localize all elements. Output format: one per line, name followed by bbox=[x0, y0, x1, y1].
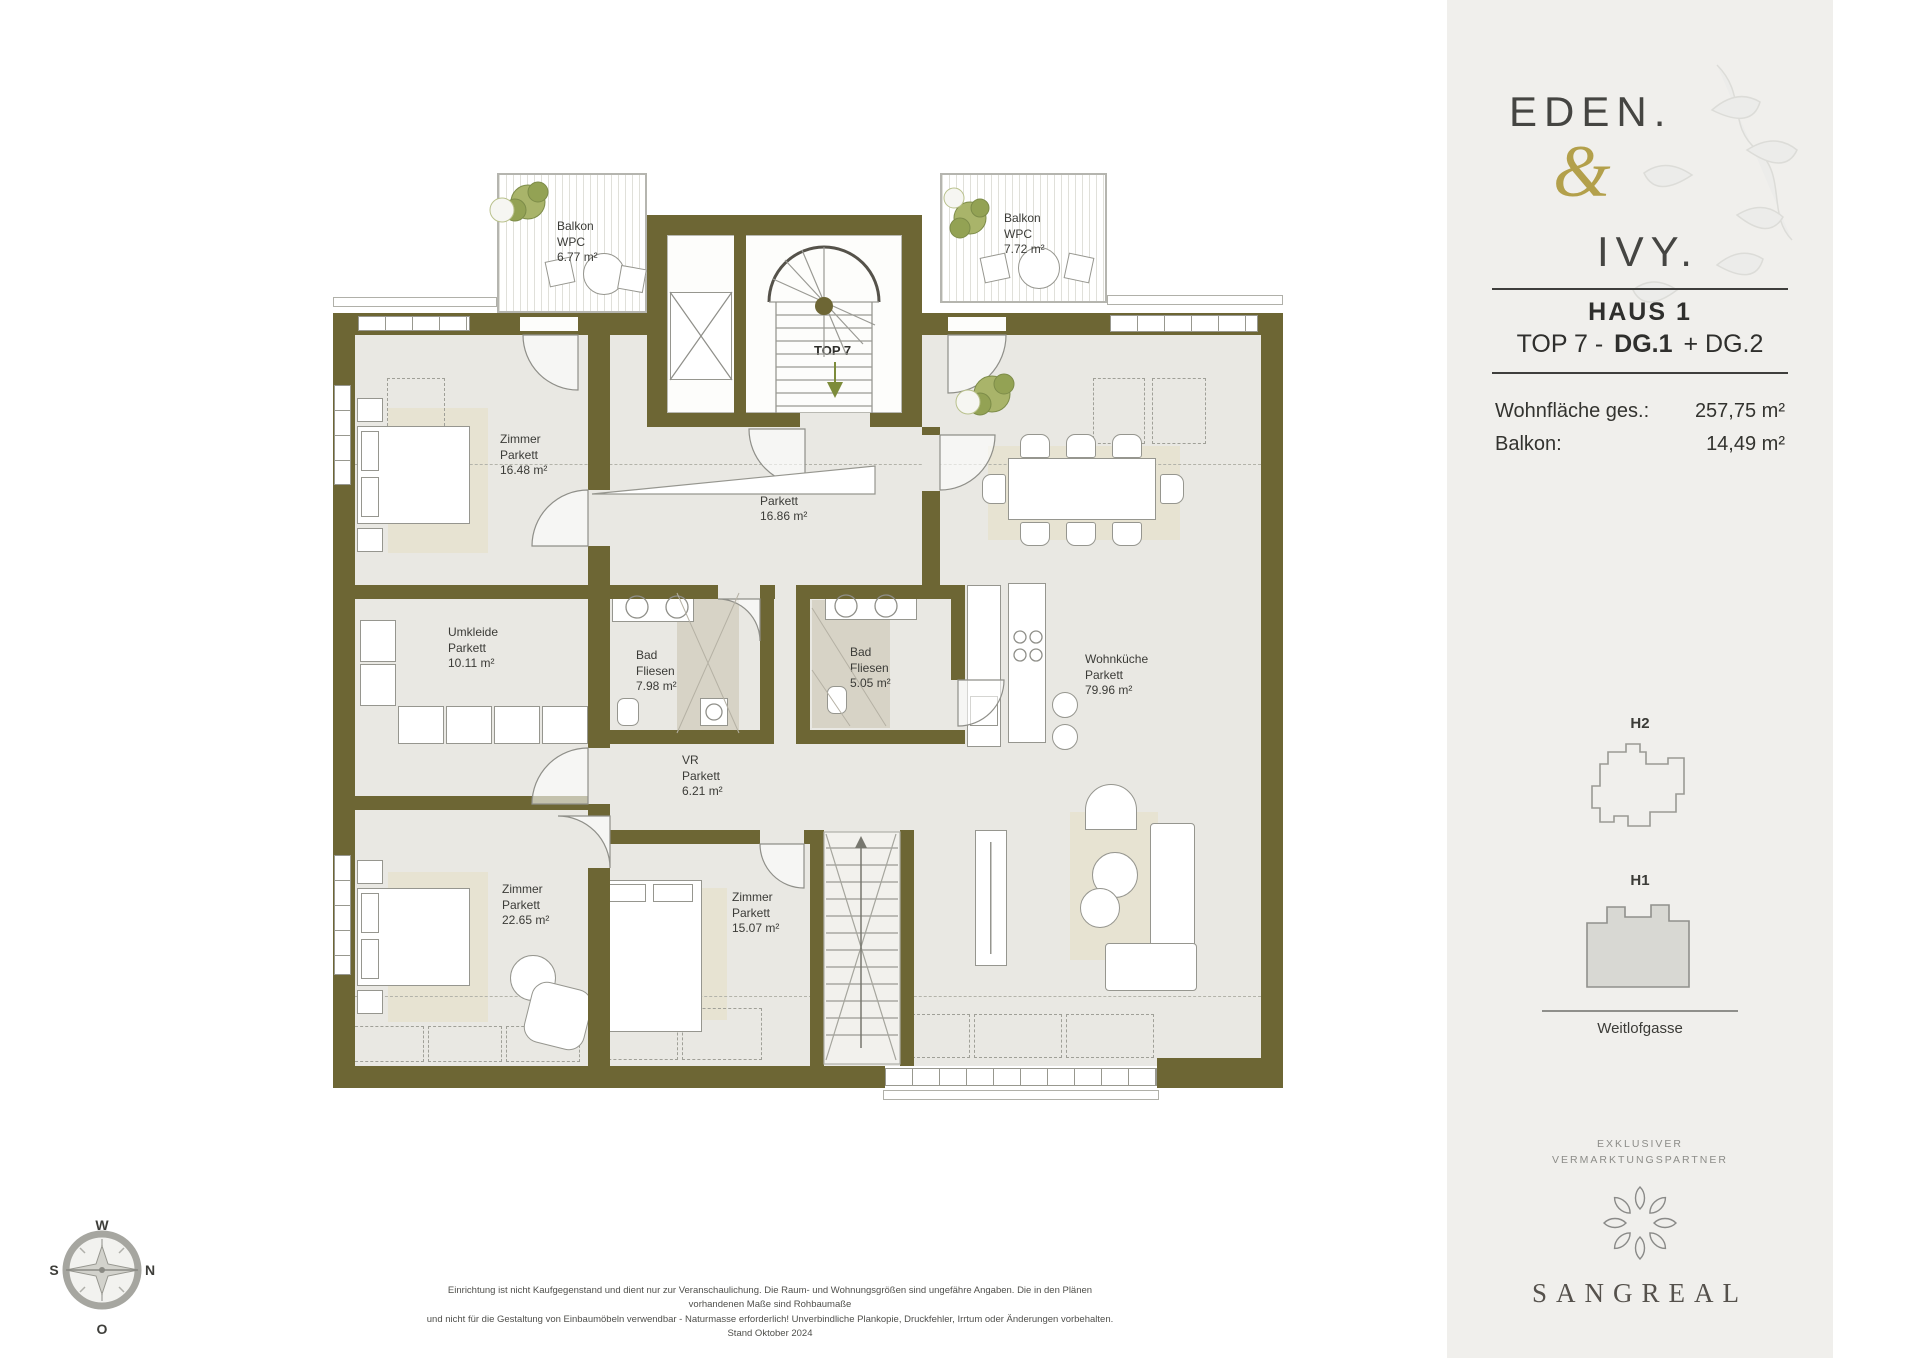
disclaimer: Einrichtung ist nicht Kaufgegenstand und… bbox=[420, 1284, 1120, 1341]
wall bbox=[1157, 1058, 1283, 1088]
h2-label: H2 bbox=[1447, 715, 1833, 732]
disclaimer-line-2: und nicht für die Gestaltung von Einbaum… bbox=[420, 1313, 1120, 1342]
logo-word-ivy: IVY. bbox=[1597, 228, 1699, 276]
wardrobe bbox=[446, 706, 492, 744]
chair bbox=[1066, 434, 1096, 458]
partner-line-1: EXKLUSIVER bbox=[1447, 1138, 1833, 1150]
low-storage bbox=[882, 1014, 970, 1058]
parapet bbox=[1107, 295, 1283, 305]
haus-title: HAUS 1 bbox=[1447, 298, 1833, 327]
pillow bbox=[361, 893, 379, 933]
pillow bbox=[361, 939, 379, 979]
street-line bbox=[1542, 1010, 1738, 1012]
top-prefix: TOP 7 - bbox=[1517, 330, 1604, 358]
pillow bbox=[361, 431, 379, 471]
stool bbox=[1052, 724, 1078, 750]
top-bold: DG.1 bbox=[1614, 330, 1672, 358]
wall bbox=[810, 830, 824, 1066]
wardrobe bbox=[398, 706, 444, 744]
parapet bbox=[333, 297, 497, 307]
pillow bbox=[653, 884, 693, 902]
bed bbox=[357, 888, 470, 986]
wardrobe bbox=[542, 706, 588, 744]
top-title: TOP 7 - DG.1 + DG.2 bbox=[1447, 330, 1833, 359]
wall bbox=[355, 796, 588, 810]
entry-door-opening bbox=[800, 413, 870, 429]
nightstand bbox=[357, 860, 383, 884]
area-label: Wohnfläche ges.: bbox=[1495, 400, 1649, 423]
room-label-balkon-2: Balkon WPC 7.72 m² bbox=[1004, 211, 1045, 258]
floorplan-page: Balkon WPC 6.77 m² Balkon WPC 7.72 m² Zi… bbox=[0, 0, 1920, 1358]
tv-sideboard bbox=[975, 830, 1007, 966]
wall bbox=[1261, 313, 1283, 1088]
nightstand bbox=[357, 398, 383, 422]
compass-n: N bbox=[145, 1262, 155, 1278]
room-label-bad-2: BadFliesen5.05 m² bbox=[850, 645, 891, 692]
chair bbox=[982, 474, 1006, 504]
wall bbox=[796, 585, 810, 744]
elevator-icon bbox=[670, 292, 732, 380]
skylight bbox=[1152, 378, 1206, 444]
unit-label: TOP 7 bbox=[814, 343, 851, 358]
divider bbox=[1492, 372, 1788, 374]
door-opening bbox=[951, 680, 965, 730]
disclaimer-line-1: Einrichtung ist nicht Kaufgegenstand und… bbox=[420, 1284, 1120, 1313]
bed bbox=[357, 426, 470, 524]
floor-plan: Balkon WPC 6.77 m² Balkon WPC 7.72 m² Zi… bbox=[330, 140, 1286, 1102]
wall bbox=[810, 585, 965, 599]
area-value: 14,49 m² bbox=[1706, 433, 1785, 456]
washer bbox=[700, 698, 728, 726]
room-label-vr-1: VRParkett16.86 m² bbox=[760, 478, 807, 525]
balcony-door-opening bbox=[948, 317, 1006, 331]
low-storage bbox=[350, 1026, 424, 1062]
door-opening bbox=[588, 748, 610, 804]
wall bbox=[333, 1066, 885, 1088]
brand-name: SANGREAL bbox=[1447, 1278, 1833, 1309]
coffee-table bbox=[1080, 888, 1120, 928]
chair bbox=[1112, 522, 1142, 546]
logo-ampersand: & bbox=[1553, 130, 1611, 215]
compass-icon: W N S O bbox=[42, 1206, 162, 1338]
wall bbox=[900, 830, 914, 1066]
chair bbox=[1160, 474, 1184, 504]
balcony-1: Balkon WPC 6.77 m² bbox=[497, 173, 647, 313]
toilet bbox=[827, 686, 847, 714]
kitchen-appliance bbox=[970, 696, 998, 726]
low-storage bbox=[974, 1014, 1062, 1058]
logo-word-eden: EDEN. bbox=[1509, 88, 1672, 136]
parapet bbox=[883, 1090, 1159, 1100]
terrace-window bbox=[885, 1068, 1157, 1086]
compass-w: W bbox=[95, 1217, 109, 1233]
height-line bbox=[355, 996, 1261, 997]
low-storage bbox=[428, 1026, 502, 1062]
door-opening bbox=[588, 490, 610, 546]
divider bbox=[1492, 288, 1788, 290]
toilet bbox=[617, 698, 639, 726]
chair bbox=[1020, 522, 1050, 546]
area-value: 257,75 m² bbox=[1695, 400, 1785, 423]
area-row-wohnflaeche: Wohnfläche ges.: 257,75 m² bbox=[1495, 400, 1785, 423]
dining-table bbox=[1008, 458, 1156, 520]
wall bbox=[355, 585, 588, 599]
room-label-zimmer-2: ZimmerParkett22.65 m² bbox=[502, 882, 549, 929]
wall bbox=[610, 730, 774, 744]
wall bbox=[588, 335, 610, 810]
compass-s: S bbox=[49, 1262, 58, 1278]
chair bbox=[1112, 434, 1142, 458]
stool bbox=[1052, 692, 1078, 718]
chair bbox=[1066, 522, 1096, 546]
wardrobe bbox=[494, 706, 540, 744]
window-band bbox=[1110, 315, 1258, 332]
nightstand bbox=[357, 990, 383, 1014]
wardrobe bbox=[360, 620, 396, 662]
balcony-2: Balkon WPC 7.72 m² bbox=[940, 173, 1107, 303]
wall bbox=[734, 235, 746, 413]
room-label-zimmer-1: ZimmerParkett16.48 m² bbox=[500, 432, 547, 479]
chair bbox=[1020, 434, 1050, 458]
door-opening bbox=[718, 585, 760, 599]
armchair bbox=[1085, 784, 1137, 830]
balcony-chair bbox=[1064, 253, 1095, 284]
pillow bbox=[361, 477, 379, 517]
top-suffix: + DG.2 bbox=[1683, 330, 1763, 358]
nightstand bbox=[357, 528, 383, 552]
room-label-wohnkueche: WohnkücheParkett79.96 m² bbox=[1085, 652, 1148, 699]
street-name: Weitlofgasse bbox=[1447, 1020, 1833, 1037]
room-label-vr-2: VRParkett6.21 m² bbox=[682, 753, 723, 800]
sidebar: EDEN. & IVY. HAUS 1 TOP 7 - DG.1 + DG.2 … bbox=[1447, 0, 1833, 1358]
wardrobe bbox=[360, 664, 396, 706]
area-label: Balkon: bbox=[1495, 433, 1562, 456]
pillow bbox=[606, 884, 646, 902]
wall bbox=[760, 585, 774, 744]
window bbox=[358, 316, 470, 331]
partner-line-2: VERMARKTUNGSPARTNER bbox=[1447, 1154, 1833, 1166]
room-label-balkon-1: Balkon WPC 6.77 m² bbox=[557, 219, 598, 266]
h1-footprint-icon bbox=[1575, 895, 1703, 995]
compass-o: O bbox=[97, 1321, 108, 1337]
kitchen-island bbox=[1008, 583, 1046, 743]
door-opening bbox=[588, 816, 610, 868]
balcony-chair bbox=[617, 265, 647, 293]
h2-footprint-icon bbox=[1580, 738, 1692, 846]
window bbox=[334, 385, 351, 485]
room-label-zimmer-3: ZimmerParkett15.07 m² bbox=[732, 890, 779, 937]
bed bbox=[600, 880, 702, 1032]
room-label-umkleide: UmkleideParkett10.11 m² bbox=[448, 625, 498, 672]
rosette-icon bbox=[1597, 1180, 1683, 1266]
low-storage bbox=[1066, 1014, 1154, 1058]
balcony-door-opening bbox=[520, 317, 578, 331]
area-row-balkon: Balkon: 14,49 m² bbox=[1495, 433, 1785, 456]
sofa bbox=[1105, 943, 1197, 991]
h1-label: H1 bbox=[1447, 872, 1833, 889]
door-opening bbox=[760, 830, 804, 844]
door-opening bbox=[922, 435, 940, 491]
wall bbox=[796, 730, 965, 744]
room-label-bad-1: BadFliesen7.98 m² bbox=[636, 648, 677, 695]
window bbox=[334, 855, 351, 975]
